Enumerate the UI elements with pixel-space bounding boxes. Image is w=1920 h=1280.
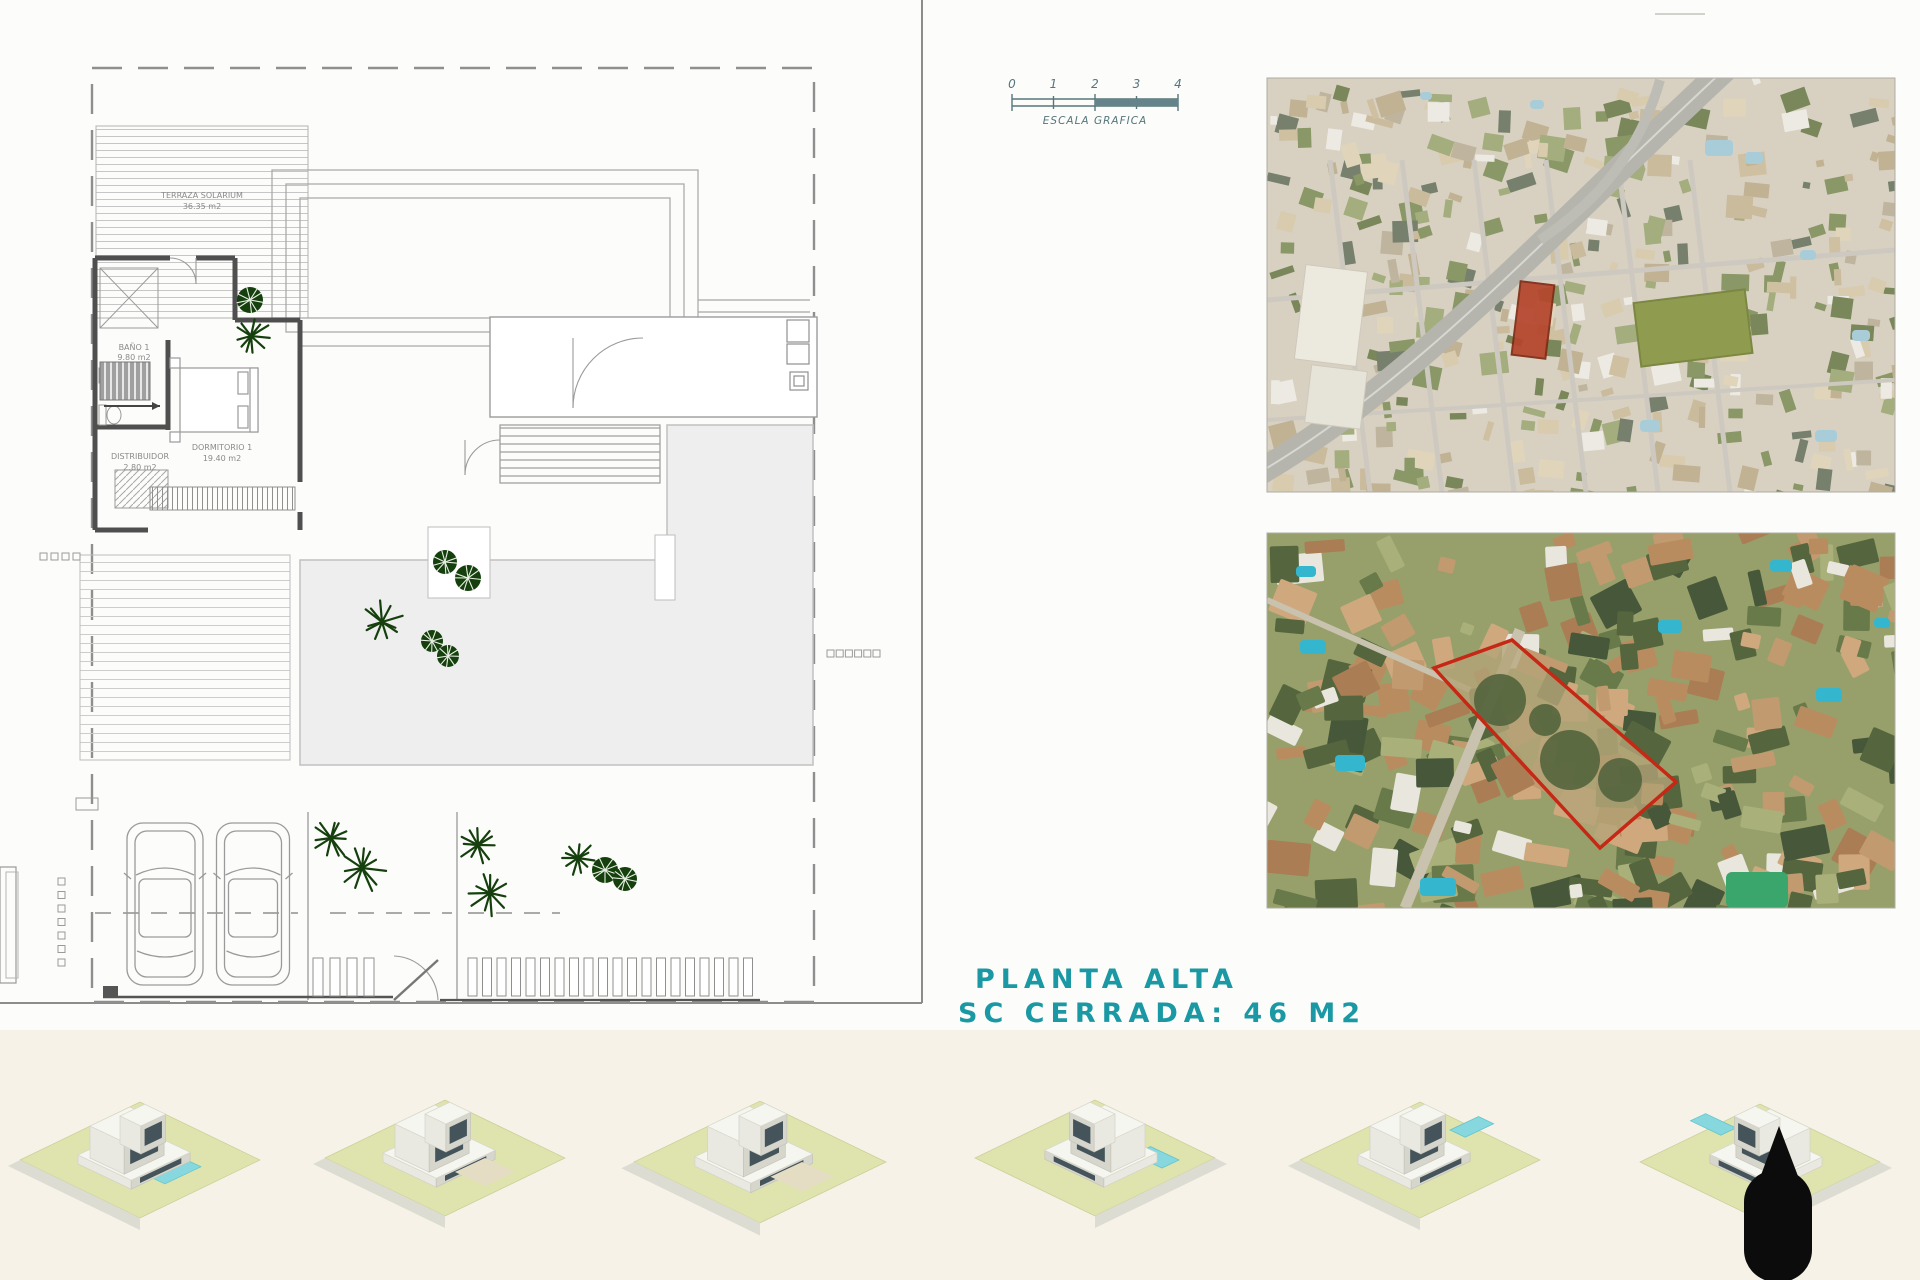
room-label-terraza: TERRAZA SOLARIUM: [160, 191, 243, 200]
scale-fill: [1095, 99, 1178, 106]
fence-slats: [313, 958, 753, 996]
room-area-bano: 9.80 m2: [117, 353, 150, 362]
roof-boxes: [787, 320, 809, 390]
plan-title: PLANTA ALTA SC CERRADA: 46 M2: [958, 964, 1366, 1029]
scale-tick-1: 1: [1050, 77, 1058, 91]
bottom-band: [0, 1030, 1920, 1280]
room-label-distribuidor: DISTRIBUIDOR: [111, 452, 170, 461]
palm-tree-icon: [315, 823, 346, 856]
room-area-terraza: 36.35 m2: [183, 202, 221, 211]
palm-tree-icon: [562, 844, 594, 874]
terraza-solarium: TERRAZA SOLARIUM 36.35 m2: [96, 126, 308, 318]
room-label-bano: BAÑO 1: [119, 342, 150, 352]
louver-pergola: [500, 425, 660, 483]
floor-plan: TERRAZA SOLARIUM 36.35 m2: [0, 68, 880, 1002]
sheet-graphics: TERRAZA SOLARIUM 36.35 m2: [0, 0, 1920, 1280]
upper-slab: [490, 317, 817, 417]
garden-steps: [80, 555, 290, 760]
scale-tick-3: 3: [1133, 77, 1141, 91]
scale-tick-0: 0: [1008, 77, 1016, 91]
scale-caption: ESCALA GRAFICA: [1043, 115, 1147, 127]
room-area-dormitorio: 19.40 m2: [203, 454, 241, 463]
terrace-slot: [655, 535, 675, 600]
cars-topview: [124, 823, 293, 985]
aerial-photo-plot-closeup: [1250, 516, 1920, 945]
presentation-sheet: TERRAZA SOLARIUM 36.35 m2: [0, 0, 1920, 1280]
bed: [170, 358, 258, 442]
graphic-scale: 0 1 2 3 4 ESCALA GRAFICA: [1008, 77, 1182, 127]
title-line2: SC CERRADA: 46 M2: [958, 998, 1366, 1029]
scale-tick-2: 2: [1091, 77, 1099, 91]
aerial-photo-site-location: [1255, 55, 1916, 517]
title-line1: PLANTA ALTA: [975, 964, 1239, 995]
stairs: [100, 362, 160, 410]
palm-tree-icon: [469, 874, 506, 916]
car-topview: [214, 823, 293, 985]
room-area-distribuidor: 2.80 m2: [123, 463, 156, 472]
palm-tree-icon: [461, 828, 494, 863]
palm-tree-icon: [345, 848, 387, 891]
palm-tree-icon: [238, 320, 270, 353]
window-band: [150, 487, 295, 510]
car-topview: [124, 823, 206, 985]
scale-tick-4: 4: [1174, 77, 1182, 91]
room-label-dormitorio: DORMITORIO 1: [192, 443, 252, 452]
